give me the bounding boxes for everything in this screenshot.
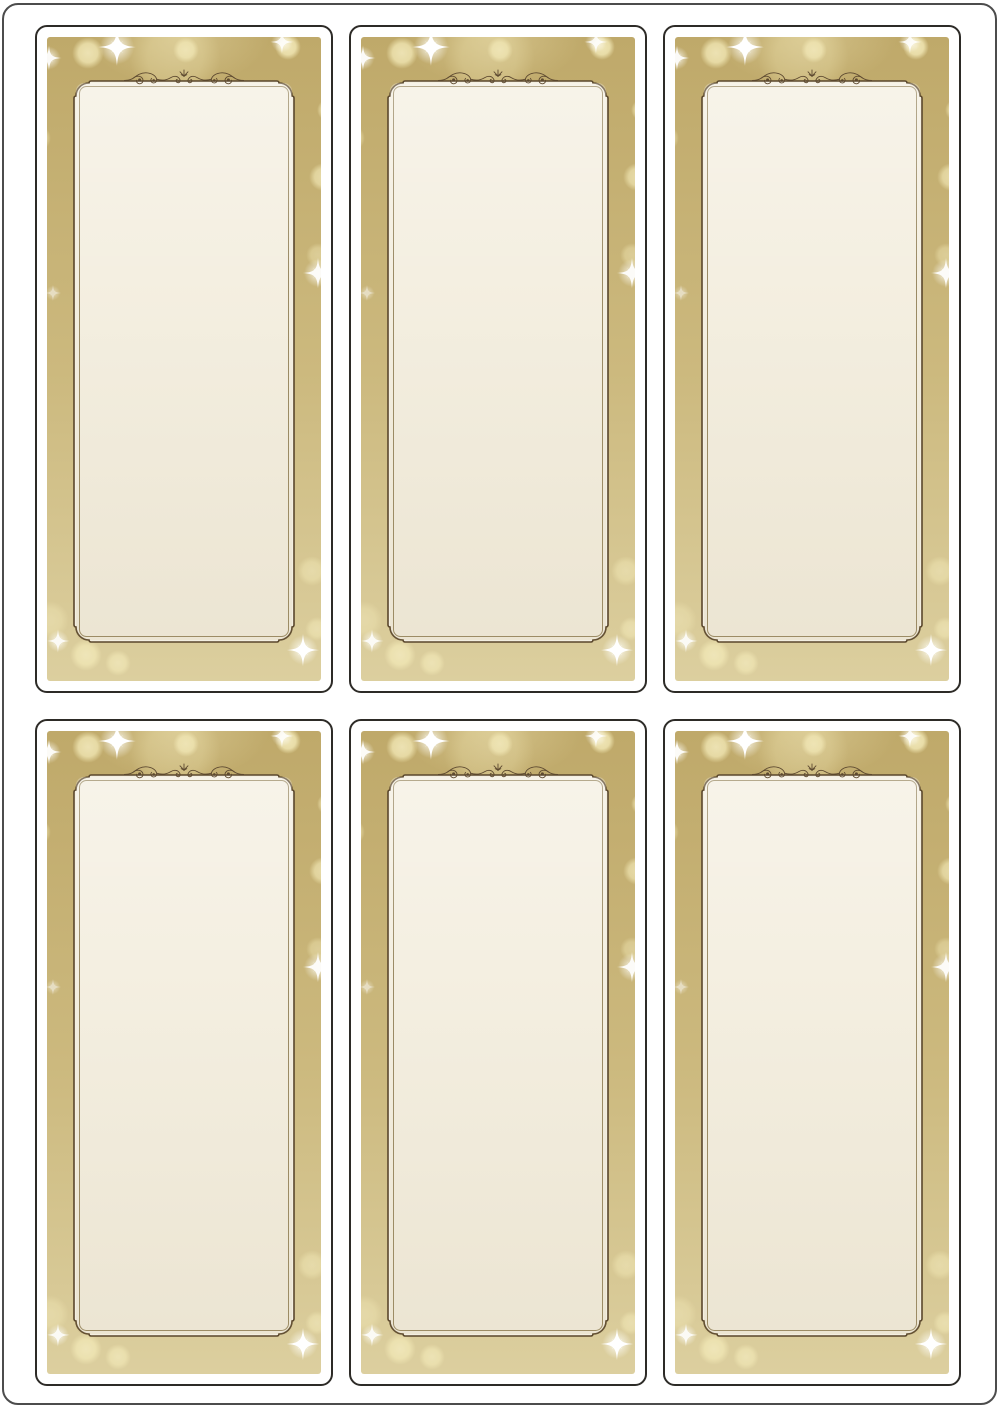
flourish-right-half xyxy=(816,72,872,83)
label-gold-background xyxy=(47,731,321,1374)
bokeh-glow-circle xyxy=(70,1333,102,1365)
sparkle-icon xyxy=(675,738,691,766)
flourish-right-half xyxy=(188,72,244,83)
bokeh-glow-circle xyxy=(925,1250,949,1280)
text-panel-frame xyxy=(701,80,923,643)
label-sheet xyxy=(35,25,961,1386)
bokeh-glow-circle xyxy=(297,1250,321,1280)
bokeh-glow-circle xyxy=(105,650,131,676)
sparkle-icon xyxy=(361,738,377,766)
flourish-ornament-icon xyxy=(438,67,558,89)
flourish-right-half xyxy=(502,766,558,777)
flourish-right-half xyxy=(816,766,872,777)
panel-outer-border xyxy=(388,81,608,642)
sparkle-icon xyxy=(47,738,63,766)
sparkle-icon xyxy=(675,44,691,72)
bokeh-glow-circle xyxy=(733,650,759,676)
flourish-left-half xyxy=(124,766,180,777)
panel-outer-border xyxy=(74,81,294,642)
bokeh-glow-circle xyxy=(361,125,365,151)
text-panel-frame xyxy=(387,774,609,1337)
flourish-right-half xyxy=(188,766,244,777)
flourish-ornament-icon xyxy=(438,761,558,783)
bokeh-glow-circle xyxy=(611,556,635,586)
label-template-page: { "sheet": { "rows": 2, "columns": 3, "l… xyxy=(0,0,1000,1414)
bokeh-glow-circle xyxy=(623,163,635,191)
flourish-left-half xyxy=(438,766,494,777)
sparkle-icon xyxy=(410,731,452,762)
label-sticker xyxy=(663,719,961,1386)
bokeh-glow-circle xyxy=(623,857,635,885)
bokeh-glow-circle xyxy=(105,1344,131,1370)
label-gold-background xyxy=(47,37,321,681)
sparkle-icon xyxy=(410,37,452,68)
sparkle-icon xyxy=(583,37,609,55)
sparkle-icon xyxy=(929,950,949,984)
sparkle-icon xyxy=(615,256,635,290)
sparkle-icon xyxy=(675,628,699,654)
sparkle-icon xyxy=(361,628,385,654)
flourish-center-sprout xyxy=(494,70,502,77)
label-sticker xyxy=(349,719,647,1386)
panel-outer-border xyxy=(388,775,608,1336)
bokeh-glow-circle xyxy=(937,163,949,191)
sparkle-icon xyxy=(361,44,377,72)
flourish-ornament-icon xyxy=(752,67,872,89)
bokeh-glow-circle xyxy=(419,650,445,676)
sparkle-icon xyxy=(675,978,690,996)
text-panel-frame xyxy=(73,774,295,1337)
bokeh-glow-circle xyxy=(297,556,321,586)
flourish-right-half xyxy=(502,72,558,83)
flourish-ornament-icon xyxy=(124,67,244,89)
bokeh-glow-circle xyxy=(675,125,679,151)
label-gold-background xyxy=(361,37,635,681)
flourish-left-half xyxy=(124,72,180,83)
bokeh-glow-circle xyxy=(675,819,679,845)
bokeh-glow-circle xyxy=(419,1344,445,1370)
sparkle-icon xyxy=(301,256,321,290)
sparkle-icon xyxy=(615,950,635,984)
label-sticker xyxy=(35,719,333,1386)
sparkle-icon xyxy=(47,1322,71,1348)
sparkle-icon xyxy=(47,628,71,654)
bokeh-glow-circle xyxy=(631,793,635,815)
sparkle-icon xyxy=(675,284,690,302)
panel-outer-border xyxy=(702,81,922,642)
text-panel-frame xyxy=(701,774,923,1337)
sparkle-icon xyxy=(361,284,376,302)
label-sticker xyxy=(663,25,961,693)
flourish-left-half xyxy=(752,72,808,83)
label-sticker xyxy=(35,25,333,693)
text-panel-frame xyxy=(73,80,295,643)
sparkle-icon xyxy=(269,731,295,749)
sparkle-icon xyxy=(675,1322,699,1348)
sparkle-icon xyxy=(724,37,766,68)
bokeh-glow-circle xyxy=(309,857,321,885)
sparkle-icon xyxy=(929,256,949,290)
label-sticker xyxy=(349,25,647,693)
flourish-center-sprout xyxy=(808,764,816,771)
label-gold-background xyxy=(675,37,949,681)
sparkle-icon xyxy=(361,978,376,996)
bokeh-glow-circle xyxy=(317,793,321,815)
panel-outer-border xyxy=(74,775,294,1336)
flourish-ornament-icon xyxy=(752,761,872,783)
bokeh-glow-circle xyxy=(733,1344,759,1370)
bokeh-glow-circle xyxy=(945,793,949,815)
sparkle-icon xyxy=(47,978,62,996)
bokeh-glow-circle xyxy=(361,819,365,845)
flourish-center-sprout xyxy=(180,70,188,77)
bokeh-glow-circle xyxy=(945,99,949,121)
bokeh-glow-circle xyxy=(698,639,730,671)
sparkle-icon xyxy=(583,731,609,749)
sparkle-icon xyxy=(897,37,923,55)
bokeh-glow-circle xyxy=(611,1250,635,1280)
flourish-left-half xyxy=(752,766,808,777)
sparkle-icon xyxy=(301,950,321,984)
text-panel-frame xyxy=(387,80,609,643)
sparkle-icon xyxy=(96,731,138,762)
label-gold-background xyxy=(675,731,949,1374)
sparkle-icon xyxy=(724,731,766,762)
sparkle-icon xyxy=(361,1322,385,1348)
bokeh-glow-circle xyxy=(309,163,321,191)
sparkle-icon xyxy=(47,44,63,72)
label-gold-background xyxy=(361,731,635,1374)
sparkle-icon xyxy=(269,37,295,55)
bokeh-glow-circle xyxy=(384,1333,416,1365)
sparkle-icon xyxy=(96,37,138,68)
bokeh-glow-circle xyxy=(937,857,949,885)
flourish-center-sprout xyxy=(494,764,502,771)
flourish-ornament-icon xyxy=(124,761,244,783)
panel-outer-border xyxy=(702,775,922,1336)
flourish-center-sprout xyxy=(808,70,816,77)
sparkle-icon xyxy=(47,284,62,302)
bokeh-glow-circle xyxy=(70,639,102,671)
bokeh-glow-circle xyxy=(631,99,635,121)
bokeh-glow-circle xyxy=(317,99,321,121)
bokeh-glow-circle xyxy=(384,639,416,671)
flourish-left-half xyxy=(438,72,494,83)
bokeh-glow-circle xyxy=(47,125,51,151)
sparkle-icon xyxy=(897,731,923,749)
bokeh-glow-circle xyxy=(925,556,949,586)
bokeh-glow-circle xyxy=(698,1333,730,1365)
flourish-center-sprout xyxy=(180,764,188,771)
bokeh-glow-circle xyxy=(47,819,51,845)
